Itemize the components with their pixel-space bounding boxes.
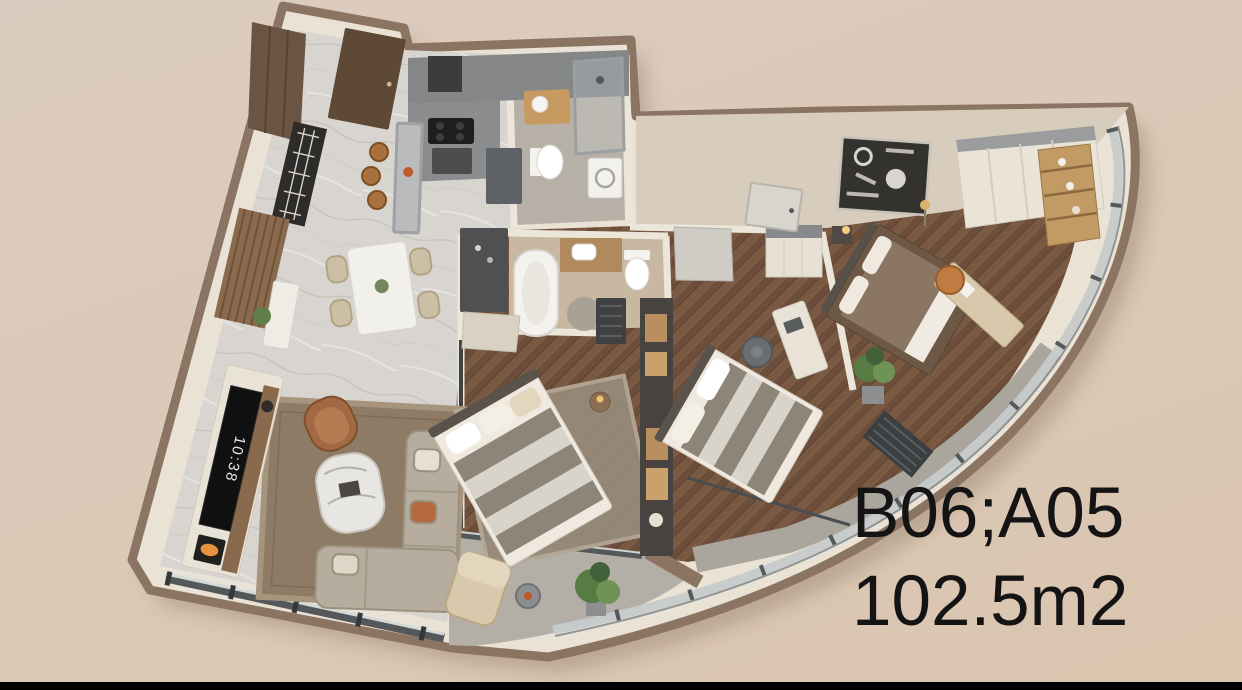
cooktop	[428, 118, 474, 144]
fridge	[486, 148, 522, 204]
oven	[432, 148, 472, 174]
wardrobe-side	[766, 225, 822, 277]
area-label: 102.5m2	[852, 566, 1128, 637]
console-plant	[253, 307, 271, 325]
office-chair	[742, 337, 772, 367]
sofa-pillow-beige	[332, 554, 359, 575]
bath-vanity	[560, 238, 622, 272]
nightstand-master	[832, 226, 852, 244]
range-hood	[428, 56, 462, 92]
kitchen-island	[392, 122, 424, 235]
shower	[574, 58, 624, 154]
open-shelf-unit	[1038, 144, 1100, 246]
nightstand-candle	[590, 392, 610, 412]
bedroom-door	[745, 183, 802, 232]
toilet	[530, 145, 563, 179]
wall-art-abstract	[838, 137, 931, 215]
washing-machine	[588, 158, 622, 198]
letterbox-bar	[0, 682, 1242, 690]
sofa-pillow-white	[414, 449, 441, 472]
balcony-side-table	[516, 584, 540, 608]
bathtub	[514, 250, 558, 336]
towel-radiator	[596, 298, 626, 344]
round-rug	[567, 297, 601, 331]
desk-chair-master	[936, 266, 964, 294]
unit-code-label: B06;A05	[852, 478, 1124, 549]
background: 10:38	[0, 0, 1242, 690]
bathroom-vanity	[523, 89, 570, 125]
toilet-2	[624, 250, 650, 290]
sofa-pillow-rust	[410, 501, 437, 524]
marble-shower-block	[674, 227, 733, 281]
